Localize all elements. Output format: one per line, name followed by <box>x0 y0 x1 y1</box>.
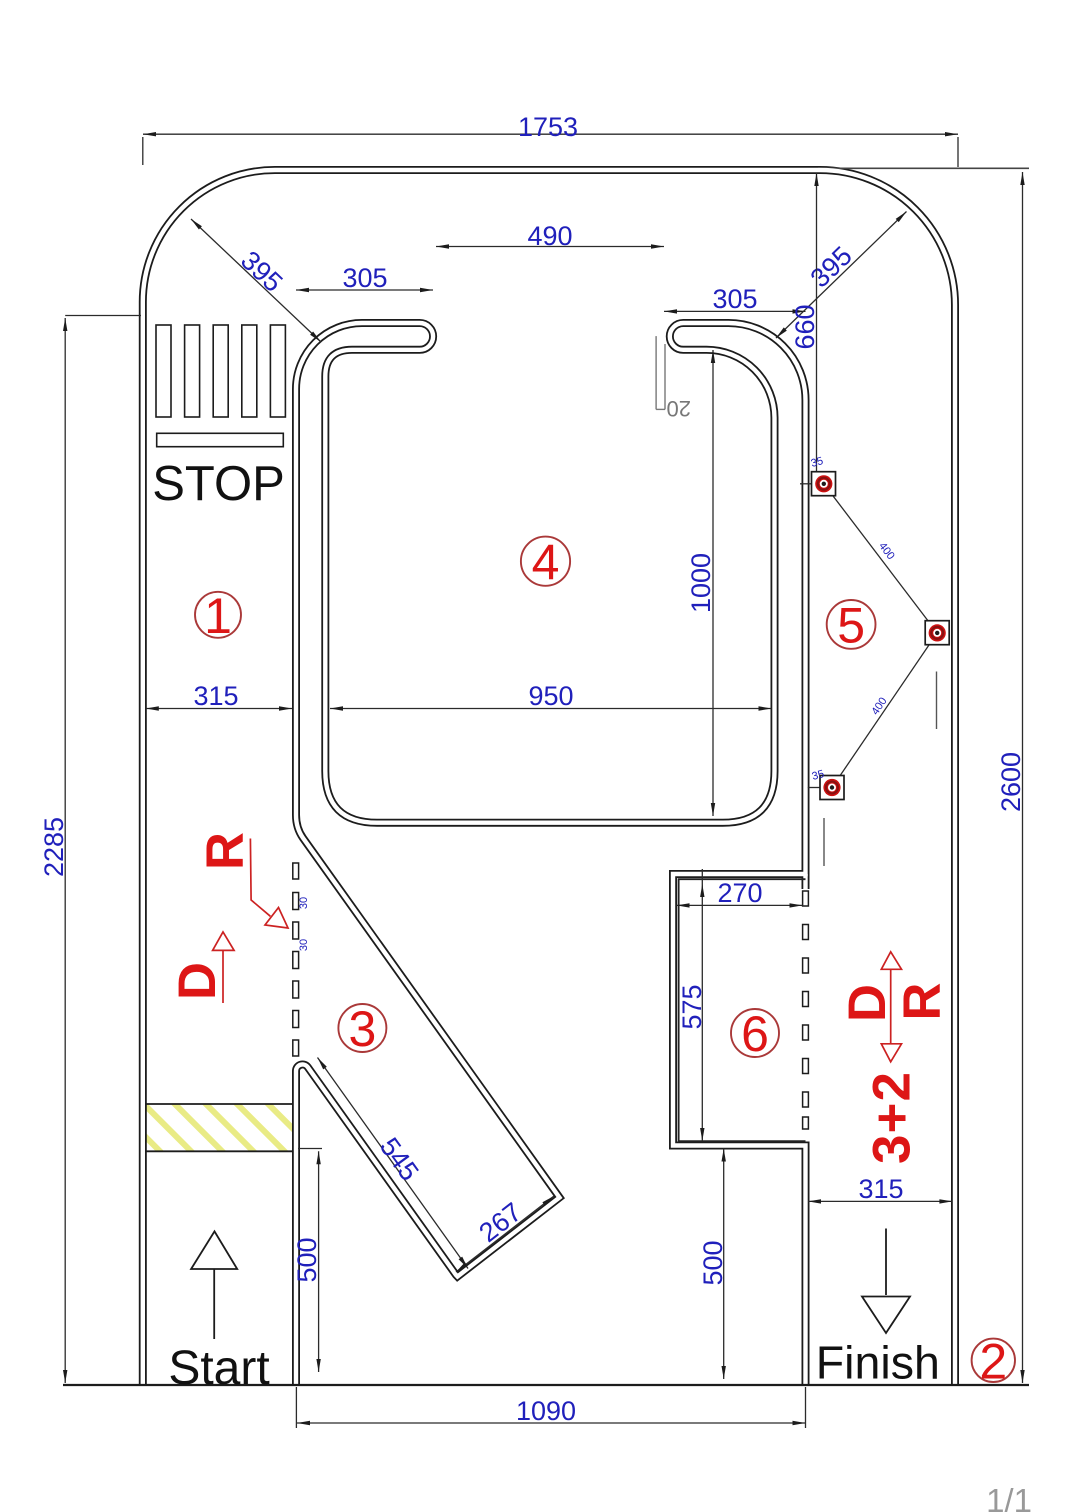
svg-text:2600: 2600 <box>996 752 1026 812</box>
svg-text:2: 2 <box>979 1333 1007 1389</box>
svg-text:D: D <box>168 962 227 1000</box>
svg-text:20: 20 <box>667 396 691 421</box>
svg-text:660: 660 <box>790 304 820 349</box>
svg-text:6: 6 <box>741 1006 769 1062</box>
svg-text:305: 305 <box>342 263 387 293</box>
svg-text:500: 500 <box>698 1240 728 1285</box>
svg-text:STOP: STOP <box>152 457 285 511</box>
svg-text:1: 1 <box>204 588 232 644</box>
svg-text:3: 3 <box>348 1001 376 1057</box>
svg-text:1753: 1753 <box>518 112 578 142</box>
svg-text:4: 4 <box>532 534 560 590</box>
svg-text:1090: 1090 <box>516 1396 576 1426</box>
svg-text:1/1: 1/1 <box>986 1482 1032 1512</box>
svg-text:R: R <box>196 832 255 870</box>
svg-text:315: 315 <box>193 681 238 711</box>
svg-text:D: D <box>838 984 897 1022</box>
svg-text:Finish: Finish <box>816 1337 940 1389</box>
svg-text:5: 5 <box>837 598 865 654</box>
svg-text:Start: Start <box>168 1342 269 1395</box>
svg-text:315: 315 <box>858 1174 903 1204</box>
svg-text:R: R <box>893 983 952 1021</box>
svg-text:490: 490 <box>527 221 572 251</box>
svg-text:30: 30 <box>298 939 310 951</box>
svg-text:30: 30 <box>298 897 310 909</box>
svg-text:575: 575 <box>677 984 707 1029</box>
svg-text:2285: 2285 <box>39 817 69 877</box>
svg-text:3+2: 3+2 <box>863 1071 922 1164</box>
svg-text:1000: 1000 <box>686 553 716 613</box>
svg-text:305: 305 <box>712 284 757 314</box>
svg-text:500: 500 <box>292 1237 322 1282</box>
svg-text:270: 270 <box>717 878 762 908</box>
svg-text:950: 950 <box>528 681 573 711</box>
